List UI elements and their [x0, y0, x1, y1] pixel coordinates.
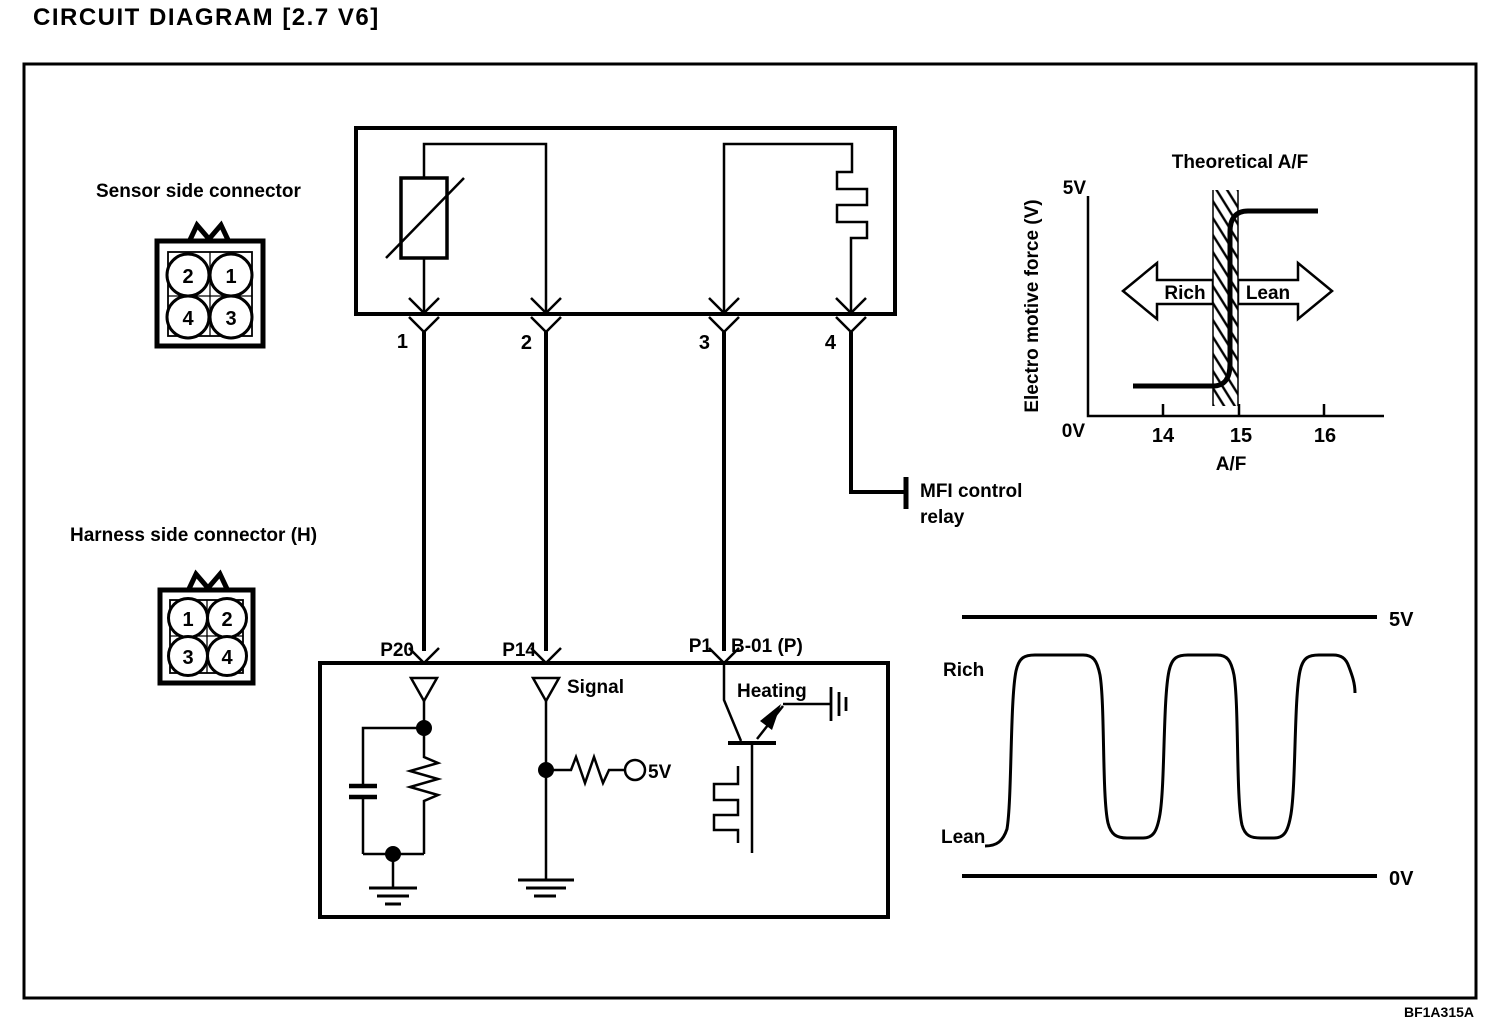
pin-number: 2	[182, 266, 193, 288]
manual-page: CIRCUIT DIAGRAM [2.7 V6] Sensor side con…	[0, 0, 1504, 1022]
sensor-pin-label: 1	[397, 331, 408, 353]
voltage-source-icon	[625, 760, 645, 780]
ecu-harness-ref-label: B-01 (P)	[731, 636, 803, 657]
ecu-p20-branch	[349, 678, 438, 904]
heater-element-icon	[724, 144, 867, 312]
wire	[363, 728, 424, 784]
waveform-0v-label: 0V	[1389, 868, 1414, 890]
ground-icon	[831, 687, 846, 721]
stoich-band	[1213, 190, 1238, 406]
input-triangle-icon	[533, 678, 559, 701]
waveform-lean-label: Lean	[941, 827, 985, 848]
variable-slash	[386, 178, 464, 258]
sensor-pin-label: 2	[521, 332, 532, 354]
figure-code: BF1A315A	[1404, 1004, 1474, 1020]
harness-wires	[424, 332, 906, 651]
sensor-connector-label: Sensor side connector	[96, 181, 301, 202]
wire-pin4-relay	[851, 332, 906, 492]
emf-tick-15: 15	[1230, 425, 1252, 447]
ecu-p14-branch: Signal 5V	[518, 677, 672, 896]
rich-annotation: Rich	[1164, 283, 1205, 304]
emf-tick-16: 16	[1314, 425, 1336, 447]
emf-x-axis-label: A/F	[1216, 454, 1247, 475]
pin-number: 3	[225, 308, 236, 330]
ecu-pin-p20-label: P20	[380, 640, 414, 661]
pullup-resistor-icon	[546, 757, 624, 783]
pin-number: 1	[225, 266, 236, 288]
relay-label-line2: relay	[920, 507, 965, 528]
circuit-diagram-canvas: Sensor side connector 2 1 4 3 Harness si…	[0, 0, 1504, 1022]
harness-connector-label: Harness side connector (H)	[70, 525, 317, 546]
emf-x-ticks	[1163, 404, 1324, 416]
ground-icon	[518, 880, 574, 896]
wire	[424, 144, 546, 312]
ecu-pin-p14-label: P14	[502, 640, 536, 661]
emitter-arrow-icon	[760, 704, 781, 730]
oscillation-curve	[985, 655, 1355, 846]
emf-ymax-label: 5V	[1063, 178, 1087, 199]
sensor-side-connector: Sensor side connector 2 1 4 3	[96, 181, 301, 346]
lean-annotation: Lean	[1246, 283, 1290, 304]
page-title: CIRCUIT DIAGRAM [2.7 V6]	[33, 4, 380, 32]
input-triangle-icon	[411, 678, 437, 701]
ground-icon	[369, 888, 417, 904]
pwm-pulse-icon	[714, 766, 738, 843]
waveform-5v-label: 5V	[1389, 609, 1414, 631]
pin-number: 2	[221, 609, 232, 631]
emf-tick-14: 14	[1152, 425, 1175, 447]
sensor-pin-label: 3	[699, 332, 710, 354]
mfi-relay-branch: MFI control relay	[906, 477, 1022, 528]
pin-number: 4	[221, 647, 233, 669]
pullup-voltage-label: 5V	[648, 762, 672, 783]
sensor-pin-label: 4	[825, 332, 837, 354]
heating-label: Heating	[737, 681, 807, 702]
ecu-heating-branch: Heating	[714, 663, 846, 853]
emf-ymin-label: 0V	[1062, 421, 1086, 442]
signal-label: Signal	[567, 677, 624, 698]
pin-number: 4	[182, 308, 194, 330]
pin-number: 1	[182, 609, 193, 631]
sensor-box-outline	[356, 128, 895, 314]
ecu-pin-p1-label: P1	[689, 636, 713, 657]
oxygen-sensor-box: 1 2 3 4	[356, 128, 895, 354]
resistor-icon	[410, 728, 438, 854]
emf-graph-title: Theoretical A/F	[1172, 152, 1309, 173]
ecu-box: P20 P14 P1 B-01 (P)	[320, 636, 888, 917]
output-waveform: 5V 0V Rich Lean	[941, 609, 1414, 890]
pin-number: 3	[182, 647, 193, 669]
transistor-collector	[724, 663, 741, 741]
emf-graph: Theoretical A/F Electro motive force (V)…	[1022, 152, 1384, 475]
relay-label-line1: MFI control	[920, 481, 1022, 502]
emf-y-axis-label: Electro motive force (V)	[1022, 199, 1043, 412]
harness-side-connector: Harness side connector (H) 1 2 3 4	[70, 525, 317, 683]
waveform-rich-label: Rich	[943, 660, 984, 681]
